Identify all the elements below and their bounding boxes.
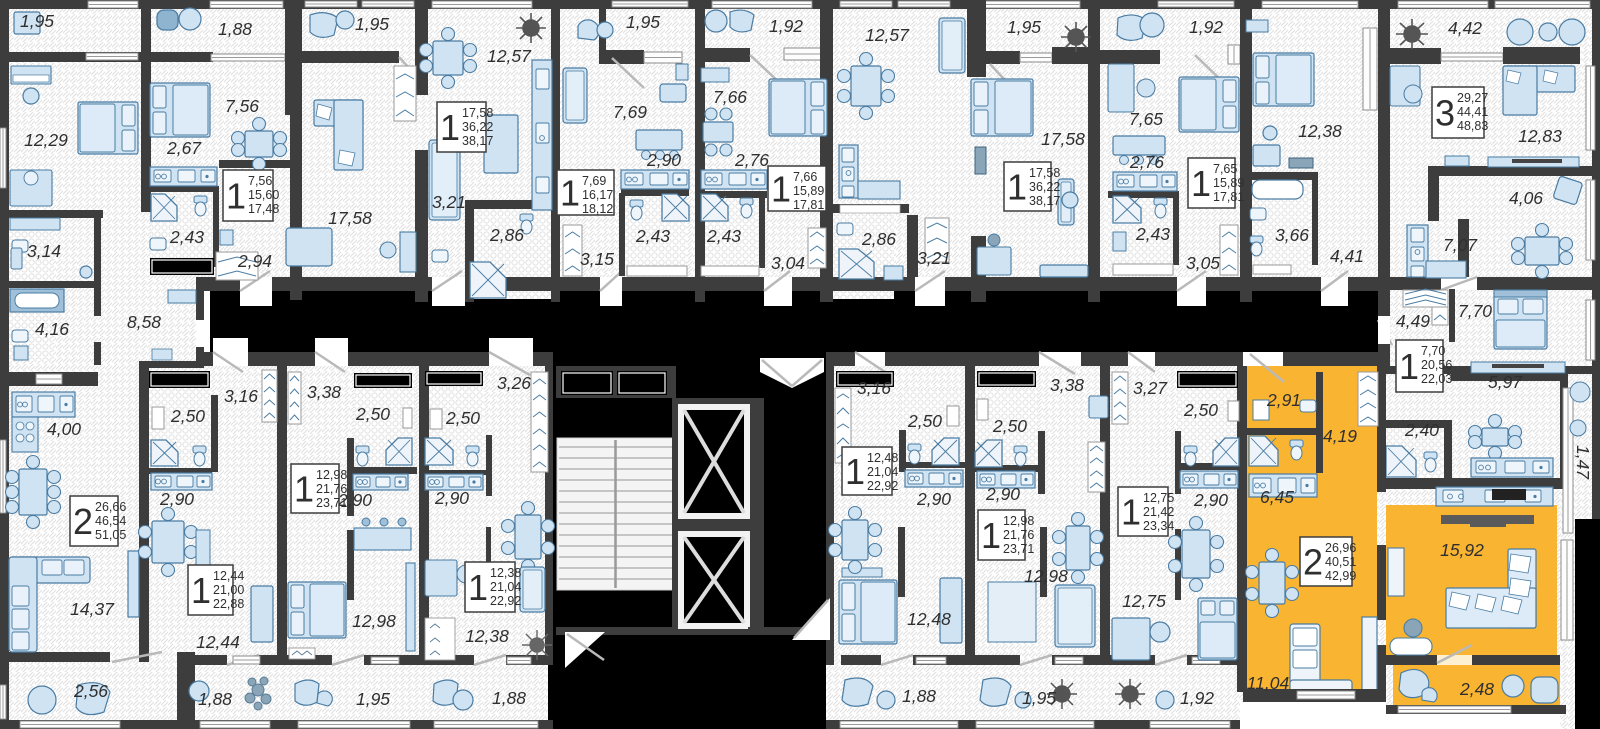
svg-text:4,49: 4,49 — [1396, 311, 1430, 331]
svg-text:12,57: 12,57 — [865, 25, 910, 45]
svg-text:6,45: 6,45 — [1260, 487, 1294, 507]
svg-text:7,69: 7,69 — [582, 174, 606, 188]
svg-text:7,65: 7,65 — [1213, 162, 1237, 176]
svg-text:3,27: 3,27 — [1133, 378, 1168, 398]
svg-text:3,38: 3,38 — [307, 382, 341, 402]
svg-text:2,50: 2,50 — [445, 408, 480, 428]
svg-text:2,86: 2,86 — [489, 225, 524, 245]
svg-text:1: 1 — [845, 451, 865, 492]
svg-text:7,70: 7,70 — [1421, 344, 1445, 358]
svg-text:4,00: 4,00 — [47, 419, 81, 439]
svg-text:21,04: 21,04 — [867, 465, 898, 479]
svg-text:3,16: 3,16 — [224, 386, 258, 406]
svg-text:1,95: 1,95 — [626, 12, 660, 32]
svg-text:42,99: 42,99 — [1325, 569, 1356, 583]
svg-text:4,06: 4,06 — [1509, 188, 1543, 208]
svg-text:2,90: 2,90 — [1193, 490, 1228, 510]
svg-text:22,03: 22,03 — [1421, 372, 1452, 386]
svg-text:17,58: 17,58 — [1041, 129, 1085, 149]
svg-text:3,16: 3,16 — [857, 378, 891, 398]
svg-text:51,05: 51,05 — [95, 528, 126, 542]
svg-text:2,50: 2,50 — [992, 416, 1027, 436]
svg-text:2: 2 — [1303, 542, 1323, 583]
svg-text:14,37: 14,37 — [70, 599, 115, 619]
svg-text:12,98: 12,98 — [316, 468, 347, 482]
svg-text:2,43: 2,43 — [706, 226, 741, 246]
svg-text:1,95: 1,95 — [1007, 17, 1041, 37]
svg-text:2,90: 2,90 — [646, 150, 681, 170]
svg-text:1,95: 1,95 — [20, 11, 54, 31]
svg-text:7,70: 7,70 — [1458, 301, 1492, 321]
svg-text:1: 1 — [1191, 163, 1211, 204]
svg-text:7,69: 7,69 — [613, 102, 647, 122]
svg-text:26,96: 26,96 — [1325, 541, 1356, 555]
svg-text:1: 1 — [226, 176, 246, 217]
svg-text:2,50: 2,50 — [170, 406, 205, 426]
svg-text:23,71: 23,71 — [1003, 542, 1034, 556]
svg-text:3,14: 3,14 — [27, 241, 61, 261]
svg-text:2,43: 2,43 — [1135, 224, 1170, 244]
svg-text:18,12: 18,12 — [582, 202, 613, 216]
svg-text:21,76: 21,76 — [1003, 528, 1034, 542]
svg-text:1: 1 — [1399, 346, 1419, 387]
svg-text:2,90: 2,90 — [159, 489, 194, 509]
svg-text:12,48: 12,48 — [867, 451, 898, 465]
svg-text:12,44: 12,44 — [213, 569, 244, 583]
svg-text:36,22: 36,22 — [462, 120, 493, 134]
svg-text:2,91: 2,91 — [1266, 390, 1301, 410]
svg-text:2,50: 2,50 — [355, 404, 390, 424]
svg-text:1: 1 — [1121, 492, 1141, 533]
svg-text:2,86: 2,86 — [861, 229, 896, 249]
svg-text:2,56: 2,56 — [73, 681, 108, 701]
svg-text:4,41: 4,41 — [1330, 246, 1364, 266]
svg-text:1: 1 — [191, 570, 211, 611]
svg-text:2,90: 2,90 — [434, 488, 469, 508]
svg-text:7,66: 7,66 — [713, 87, 747, 107]
svg-text:2,90: 2,90 — [985, 484, 1020, 504]
svg-text:15,89: 15,89 — [793, 184, 824, 198]
svg-text:1,88: 1,88 — [218, 19, 252, 39]
svg-text:21,42: 21,42 — [1143, 505, 1174, 519]
svg-text:21,76: 21,76 — [316, 482, 347, 496]
svg-text:3,38: 3,38 — [1050, 375, 1084, 395]
svg-text:12,38: 12,38 — [465, 626, 509, 646]
svg-text:48,83: 48,83 — [1457, 119, 1488, 133]
svg-text:11,04: 11,04 — [1247, 673, 1290, 693]
svg-text:1,92: 1,92 — [1180, 688, 1214, 708]
svg-text:1,92: 1,92 — [1189, 17, 1223, 37]
svg-text:1,88: 1,88 — [902, 686, 936, 706]
svg-text:23,34: 23,34 — [1143, 519, 1174, 533]
svg-text:1: 1 — [294, 469, 314, 510]
svg-text:2,43: 2,43 — [169, 227, 204, 247]
svg-text:5,97: 5,97 — [1488, 372, 1523, 392]
svg-text:12,29: 12,29 — [24, 130, 68, 150]
svg-text:2,67: 2,67 — [166, 138, 202, 158]
svg-text:7,65: 7,65 — [1129, 109, 1163, 129]
svg-text:1: 1 — [560, 173, 580, 214]
svg-text:1,95: 1,95 — [356, 689, 390, 709]
svg-text:2: 2 — [73, 501, 93, 542]
svg-text:2,48: 2,48 — [1459, 679, 1494, 699]
svg-text:2,76: 2,76 — [1129, 152, 1164, 172]
svg-text:1: 1 — [1007, 167, 1027, 208]
svg-text:1,92: 1,92 — [769, 16, 803, 36]
svg-text:17,58: 17,58 — [462, 106, 493, 120]
svg-text:4,19: 4,19 — [1323, 426, 1357, 446]
svg-text:3,21: 3,21 — [432, 192, 466, 212]
svg-text:12,98: 12,98 — [352, 611, 396, 631]
svg-text:17,48: 17,48 — [248, 202, 279, 216]
svg-text:22,92: 22,92 — [490, 594, 521, 608]
svg-text:22,88: 22,88 — [213, 597, 244, 611]
svg-text:20,56: 20,56 — [1421, 358, 1452, 372]
svg-text:1,88: 1,88 — [492, 688, 526, 708]
svg-text:1: 1 — [468, 567, 488, 608]
svg-text:2,90: 2,90 — [916, 489, 951, 509]
svg-text:8,58: 8,58 — [127, 312, 161, 332]
svg-text:4,42: 4,42 — [1448, 18, 1482, 38]
svg-text:4,16: 4,16 — [35, 319, 69, 339]
svg-text:12,57: 12,57 — [487, 46, 532, 66]
svg-text:38,17: 38,17 — [1029, 194, 1060, 208]
svg-text:12,38: 12,38 — [1298, 121, 1342, 141]
svg-text:46,54: 46,54 — [95, 514, 126, 528]
svg-text:1,95: 1,95 — [355, 14, 389, 34]
svg-text:3,26: 3,26 — [497, 373, 531, 393]
svg-text:2,76: 2,76 — [734, 150, 769, 170]
svg-text:1,88: 1,88 — [198, 689, 232, 709]
svg-text:12,98: 12,98 — [1003, 514, 1034, 528]
svg-text:1,47: 1,47 — [1573, 445, 1593, 480]
svg-text:7,56: 7,56 — [248, 174, 272, 188]
svg-text:17,58: 17,58 — [328, 208, 372, 228]
svg-text:22,92: 22,92 — [867, 479, 898, 493]
svg-text:3,66: 3,66 — [1275, 225, 1309, 245]
svg-text:44,41: 44,41 — [1457, 105, 1488, 119]
svg-text:23,71: 23,71 — [316, 496, 347, 510]
svg-text:21,00: 21,00 — [213, 583, 244, 597]
svg-text:12,75: 12,75 — [1122, 591, 1166, 611]
svg-text:3,21: 3,21 — [917, 248, 951, 268]
svg-text:7,66: 7,66 — [793, 170, 817, 184]
svg-text:29,27: 29,27 — [1457, 91, 1488, 105]
svg-text:12,83: 12,83 — [1518, 126, 1562, 146]
svg-text:26,66: 26,66 — [95, 500, 126, 514]
svg-text:21,04: 21,04 — [490, 580, 521, 594]
svg-text:12,38: 12,38 — [490, 566, 521, 580]
svg-text:17,58: 17,58 — [1029, 166, 1060, 180]
svg-text:7,07: 7,07 — [1443, 235, 1478, 255]
svg-text:17,81: 17,81 — [1213, 190, 1244, 204]
svg-text:17,81: 17,81 — [793, 198, 824, 212]
svg-text:1: 1 — [440, 107, 460, 148]
svg-text:12,48: 12,48 — [907, 609, 951, 629]
svg-text:38,17: 38,17 — [462, 134, 493, 148]
svg-text:2,50: 2,50 — [907, 411, 942, 431]
svg-text:12,75: 12,75 — [1143, 491, 1174, 505]
svg-text:1: 1 — [771, 169, 791, 210]
svg-text:3,15: 3,15 — [580, 249, 614, 269]
svg-text:3,05: 3,05 — [1186, 253, 1220, 273]
svg-text:12,98: 12,98 — [1024, 566, 1068, 586]
svg-text:36,22: 36,22 — [1029, 180, 1060, 194]
svg-text:15,92: 15,92 — [1440, 540, 1484, 560]
svg-text:2,40: 2,40 — [1404, 420, 1439, 440]
svg-text:2,50: 2,50 — [1183, 400, 1218, 420]
svg-text:1,95: 1,95 — [1022, 688, 1056, 708]
svg-text:2,43: 2,43 — [635, 226, 670, 246]
svg-text:3,04: 3,04 — [771, 253, 805, 273]
svg-text:15,60: 15,60 — [248, 188, 279, 202]
svg-text:15,89: 15,89 — [1213, 176, 1244, 190]
svg-text:7,56: 7,56 — [225, 96, 259, 116]
svg-text:40,51: 40,51 — [1325, 555, 1356, 569]
svg-text:12,44: 12,44 — [196, 632, 240, 652]
svg-text:1: 1 — [981, 515, 1001, 556]
svg-text:16,17: 16,17 — [582, 188, 613, 202]
svg-text:3: 3 — [1435, 93, 1455, 134]
svg-text:2,94: 2,94 — [237, 251, 272, 271]
